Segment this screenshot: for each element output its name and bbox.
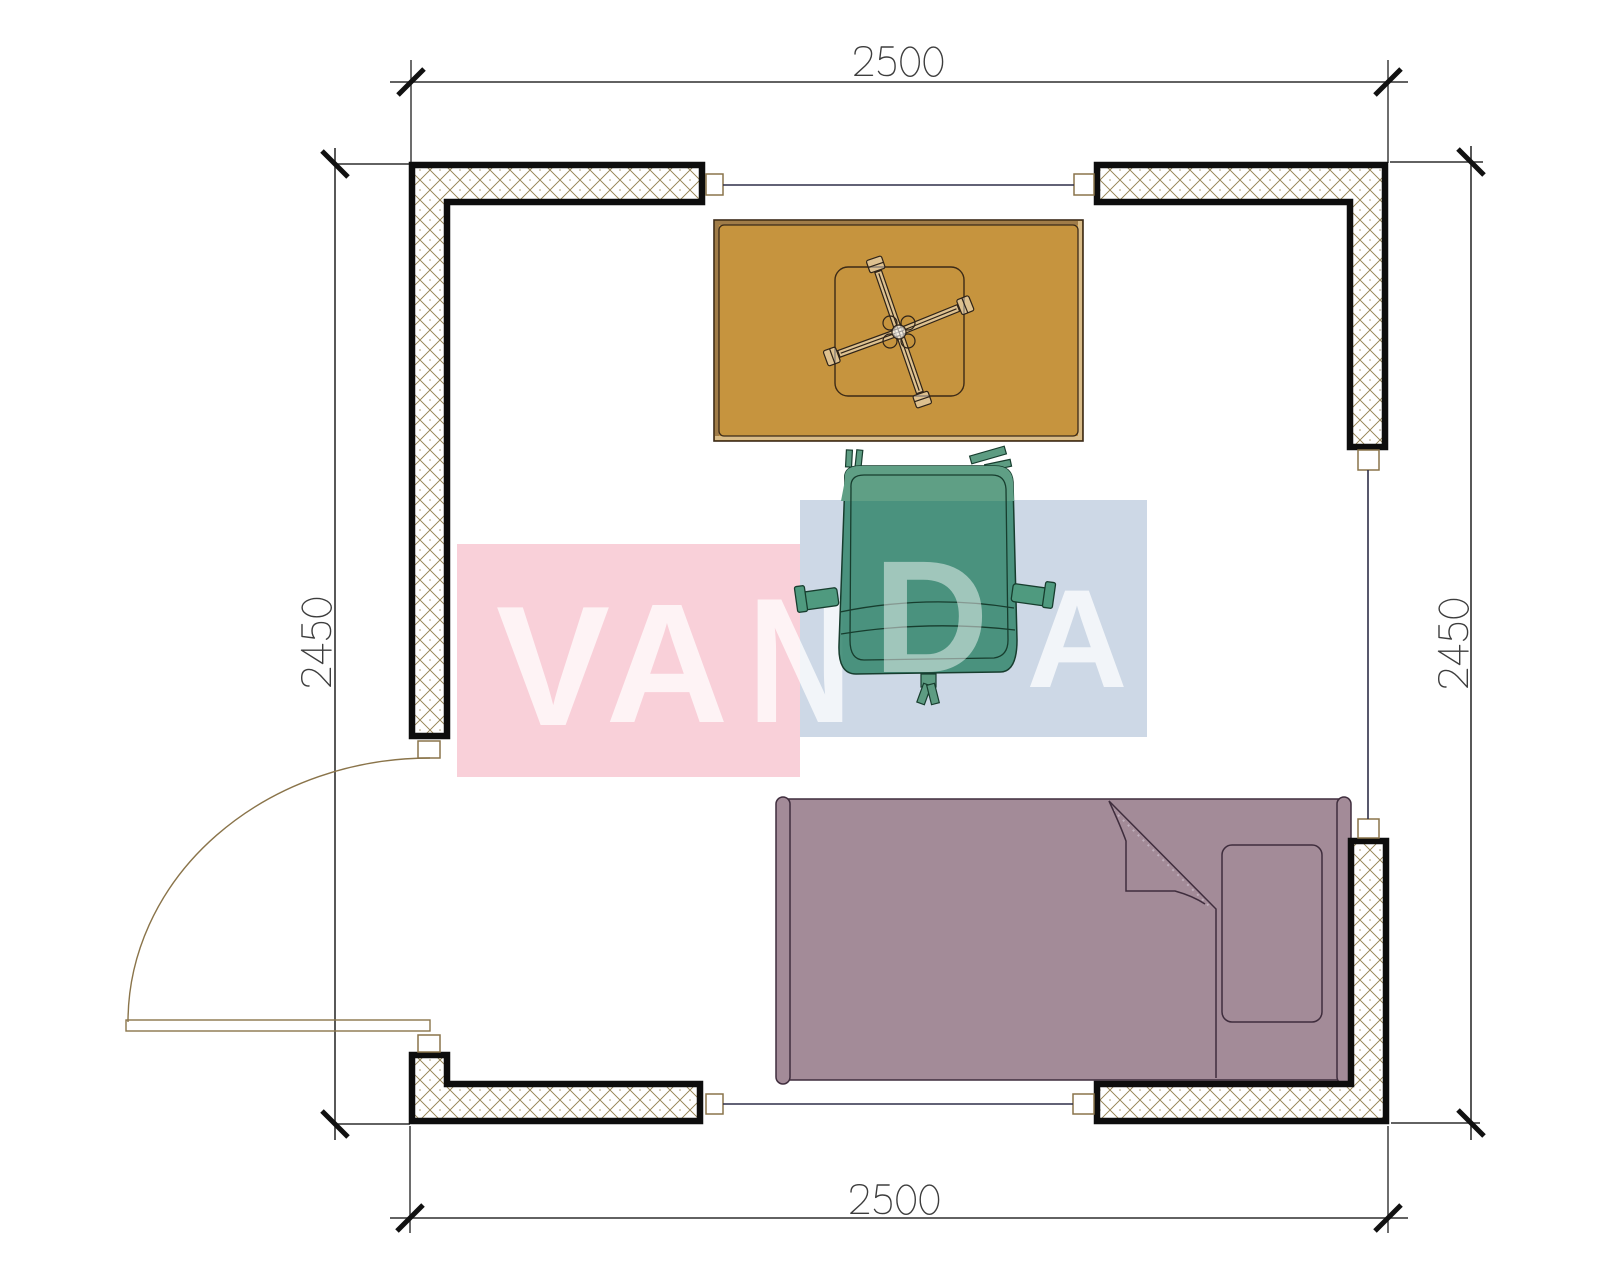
svg-text:D: D xyxy=(873,527,989,706)
svg-text:A: A xyxy=(1026,560,1127,717)
svg-text:V: V xyxy=(496,571,610,762)
svg-text:A: A xyxy=(606,569,729,759)
